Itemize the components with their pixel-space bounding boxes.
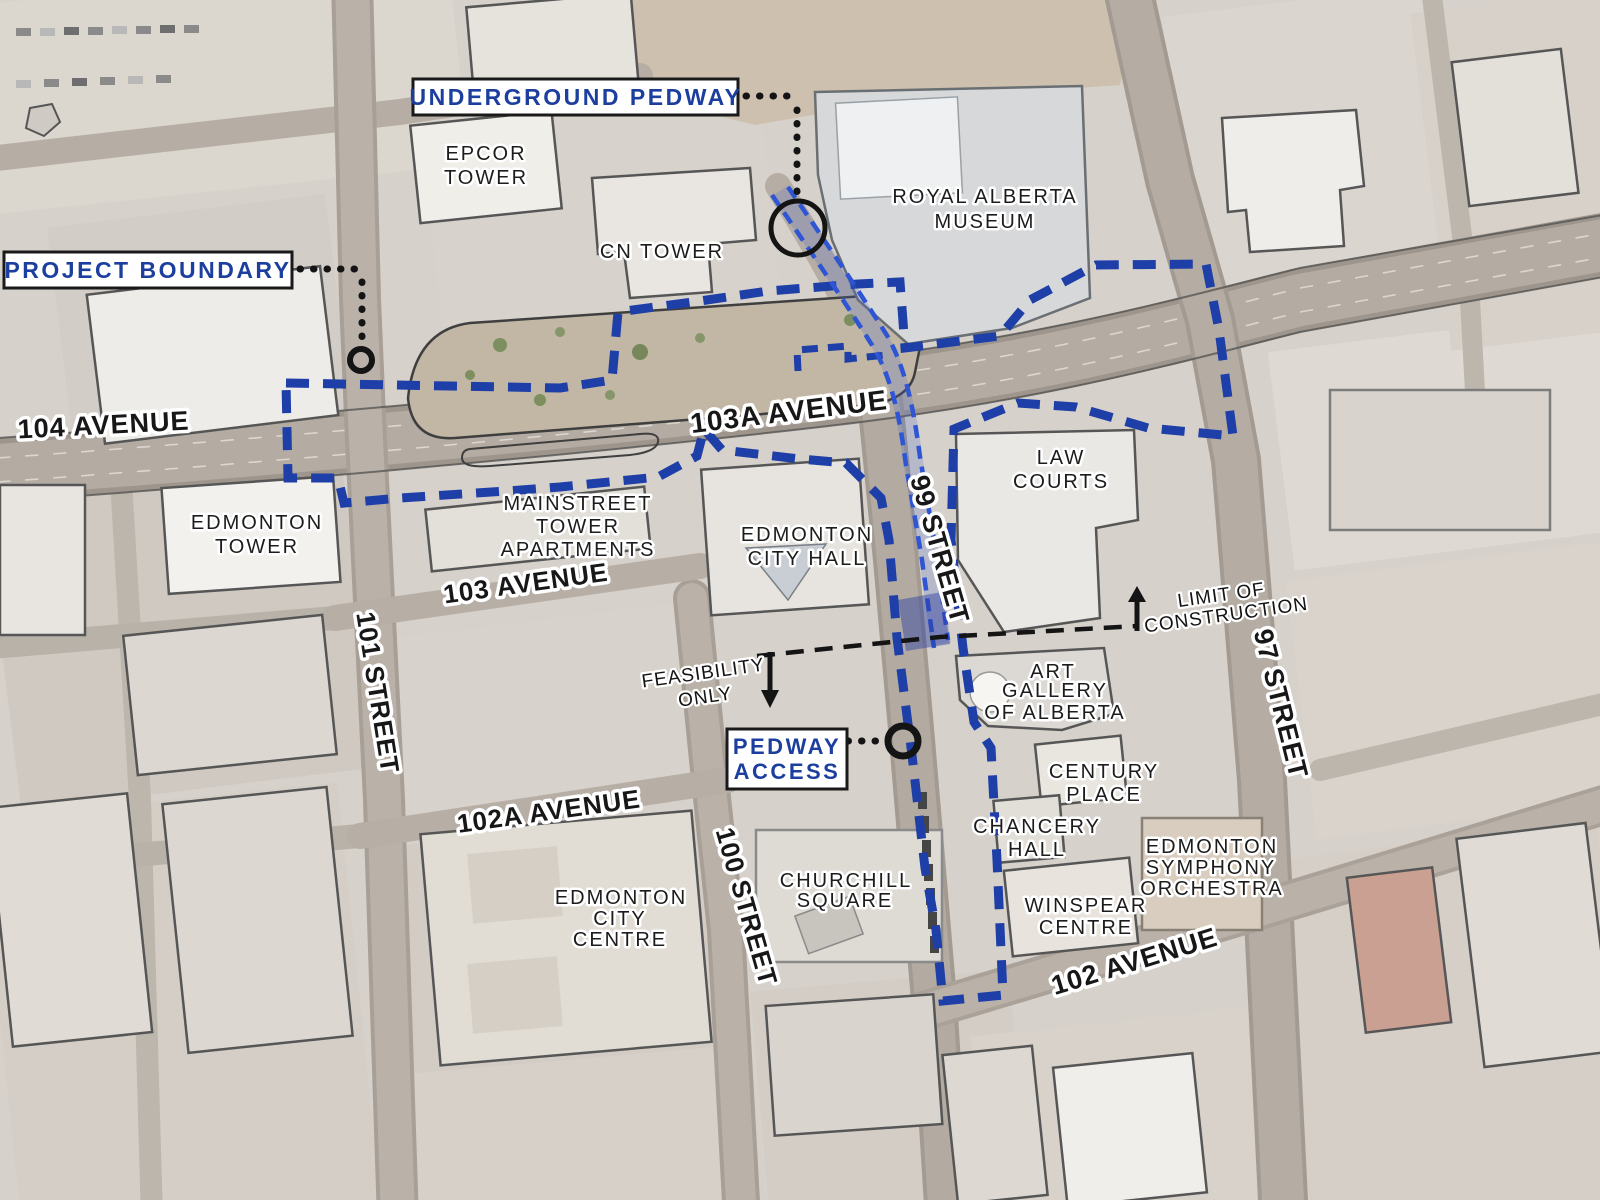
label-century-place-2: PLACE — [1066, 784, 1142, 806]
callout-underground-pedway: UNDERGROUND PEDWAY — [410, 79, 743, 115]
building-generic-bottomleft1 — [0, 793, 152, 1046]
label-edmonton-tower-2: TOWER — [215, 536, 299, 558]
callout-project-boundary-text: PROJECT BOUNDARY — [4, 257, 291, 283]
label-city-centre-2: CITY — [593, 908, 647, 930]
aerial-basemap — [0, 0, 1600, 1200]
building-generic-midleft — [123, 615, 337, 775]
label-city-hall: EDMONTON — [741, 524, 873, 546]
aerial-map-canvas: EPCOR TOWER CN TOWER ROYAL ALBERTA MUSEU… — [0, 0, 1600, 1200]
building-city-centre — [420, 811, 711, 1066]
label-churchill-square: CHURCHILL — [780, 870, 912, 892]
label-art-gallery-2: GALLERY — [1002, 680, 1108, 702]
label-eso: EDMONTON — [1146, 836, 1278, 858]
callout-pedway-access-text: PEDWAY — [733, 734, 841, 759]
label-winspear: WINSPEAR — [1025, 895, 1148, 917]
callout-underground-pedway-text: UNDERGROUND PEDWAY — [410, 84, 743, 110]
label-chancery-hall-2: HALL — [1008, 839, 1066, 861]
building-generic-bottomleft2 — [162, 787, 352, 1053]
label-mainstreet-apartments-3: APARTMENTS — [501, 539, 656, 561]
label-mainstreet-apartments-2: TOWER — [536, 516, 620, 538]
label-royal-alberta-museum-2: MUSEUM — [935, 211, 1036, 233]
label-law-courts-2: COURTS — [1013, 471, 1109, 493]
building-white-roof — [1053, 1053, 1207, 1200]
building-generic-bottom — [942, 1046, 1047, 1200]
building-brick-tower — [1347, 867, 1451, 1032]
label-eso-2: SYMPHONY — [1146, 857, 1276, 879]
building-library — [766, 994, 943, 1135]
label-epcor-tower-2: TOWER — [444, 167, 528, 189]
callout-project-boundary: PROJECT BOUNDARY — [4, 252, 292, 288]
building-museum-wing — [836, 97, 963, 199]
label-eso-3: ORCHESTRA — [1140, 878, 1284, 900]
label-winspear-2: CENTRE — [1039, 917, 1133, 939]
label-epcor-tower: EPCOR — [445, 143, 526, 165]
label-edmonton-tower: EDMONTON — [191, 512, 323, 534]
callout-pedway-access: PEDWAY ACCESS — [727, 729, 847, 789]
label-law-courts: LAW — [1037, 447, 1086, 469]
site-plan-map: EPCOR TOWER CN TOWER ROYAL ALBERTA MUSEU… — [0, 0, 1600, 1200]
label-city-centre-3: CENTRE — [573, 929, 667, 951]
building-edmonton-tower — [162, 476, 341, 594]
building-left-edge — [0, 485, 85, 635]
label-city-hall-2: CITY HALL — [748, 548, 867, 570]
building-generic-topright — [1452, 49, 1579, 206]
label-chancery-hall: CHANCERY — [973, 816, 1101, 838]
label-royal-alberta-museum: ROYAL ALBERTA — [892, 186, 1077, 208]
label-cn-tower: CN TOWER — [600, 241, 724, 263]
label-century-place: CENTURY — [1049, 761, 1159, 783]
callout-pedway-access-text-2: ACCESS — [734, 759, 841, 784]
city-centre-roof2 — [467, 956, 563, 1034]
label-mainstreet-apartments: MAINSTREET — [504, 493, 653, 515]
label-art-gallery-3: OF ALBERTA — [984, 702, 1126, 724]
label-city-centre: EDMONTON — [555, 887, 687, 909]
label-churchill-square-2: SQUARE — [797, 890, 893, 912]
city-centre-roof1 — [467, 846, 563, 924]
parking-lot-right — [1330, 390, 1550, 530]
